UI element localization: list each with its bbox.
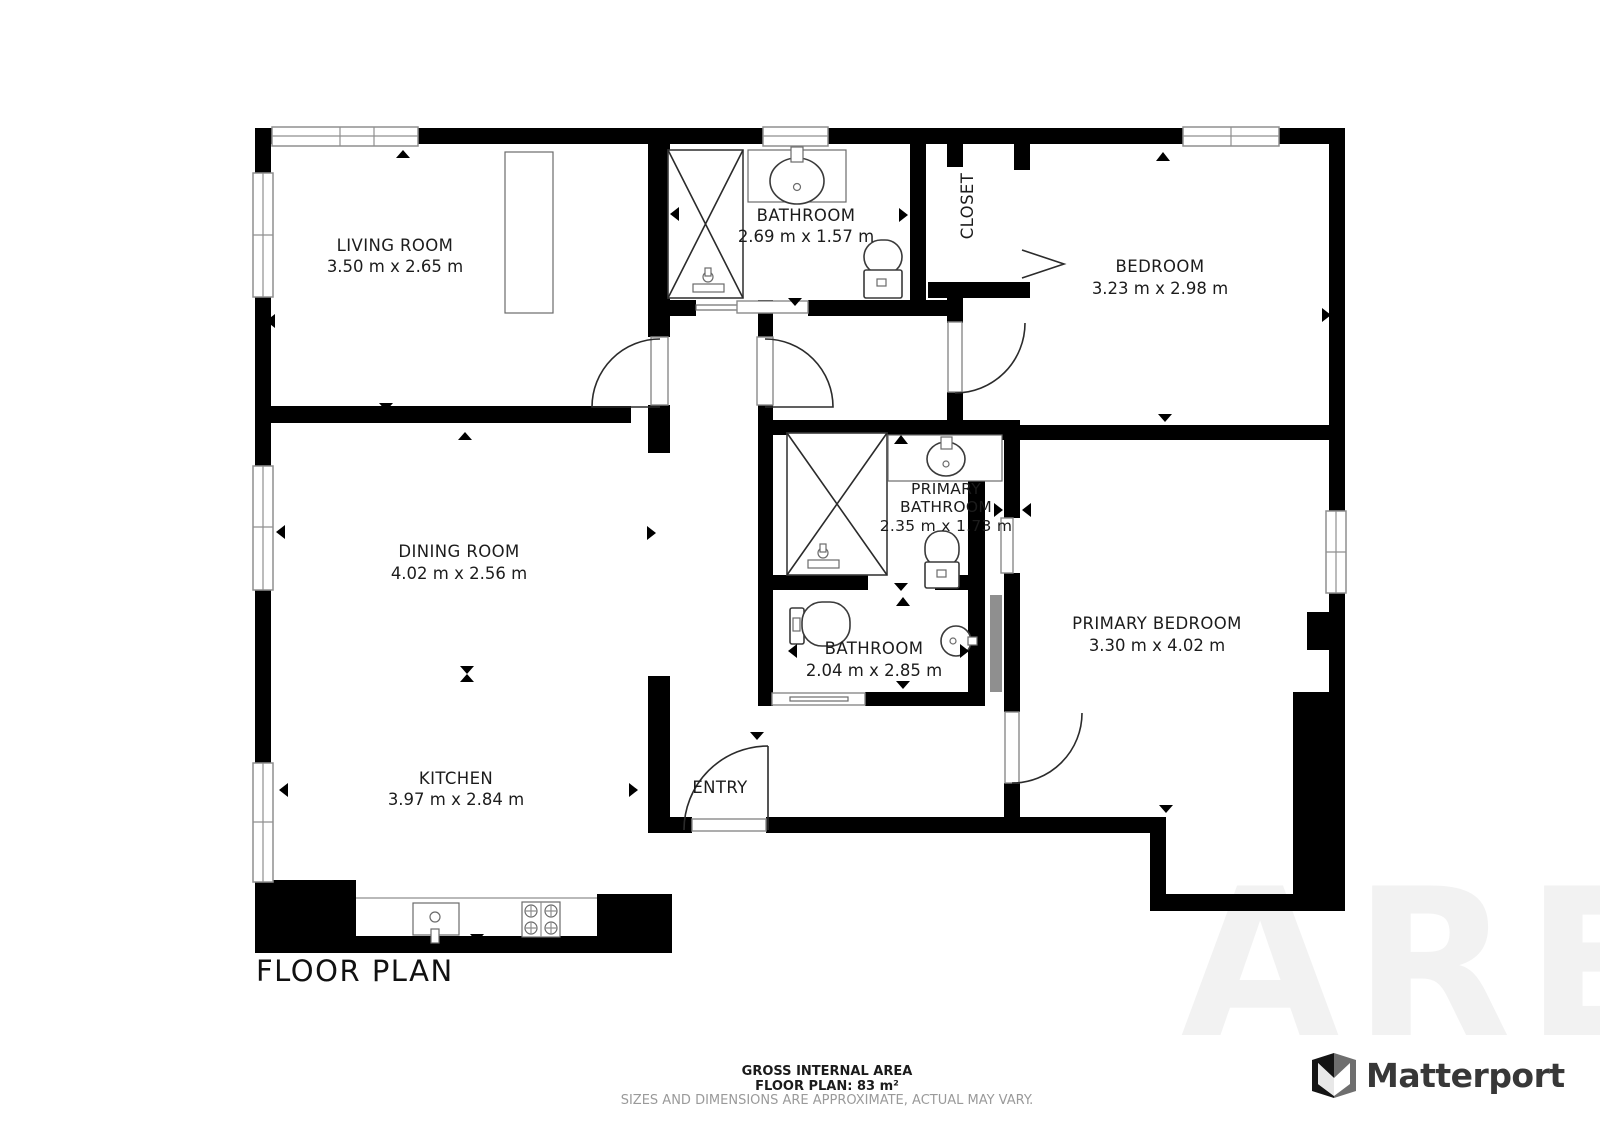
- door-arc: [765, 339, 833, 407]
- room-label-dining: DINING ROOM: [398, 542, 519, 561]
- measure-arrow: [896, 681, 910, 689]
- measure-arrow: [1159, 805, 1173, 813]
- room-dims-primary-bedroom: 3.30 m x 4.02 m: [1089, 636, 1225, 655]
- wall: [758, 575, 868, 590]
- measure-arrow: [1022, 503, 1031, 517]
- measure-arrow: [1158, 414, 1172, 422]
- room-dims-bathroom-lower: 2.04 m x 2.85 m: [806, 661, 942, 680]
- service-shaft: [990, 595, 1002, 692]
- wall: [648, 300, 696, 316]
- room-label-living: LIVING ROOM: [337, 236, 454, 255]
- measure-arrow: [460, 666, 474, 674]
- wall: [339, 936, 602, 953]
- closet-door: [1022, 250, 1064, 278]
- door-arc: [955, 323, 1025, 393]
- room-label-primary-bathroom-1: PRIMARY: [911, 480, 981, 498]
- wall: [947, 128, 963, 167]
- measure-arrow: [994, 503, 1003, 517]
- room-label-bedroom: BEDROOM: [1116, 257, 1205, 276]
- room-dims-bedroom: 3.23 m x 2.98 m: [1092, 279, 1228, 298]
- entry-door-threshold: [692, 819, 766, 831]
- wall: [1004, 573, 1020, 712]
- wall: [758, 692, 772, 706]
- measure-arrow: [788, 644, 797, 658]
- measure-arrow: [894, 583, 908, 591]
- room-label-kitchen: KITCHEN: [419, 769, 493, 788]
- door-leaf: [1005, 712, 1019, 783]
- door-leaf: [948, 322, 962, 392]
- wall: [1004, 783, 1020, 830]
- door-arc: [1012, 713, 1082, 783]
- wall: [808, 300, 948, 316]
- room-label-bathroom-top: BATHROOM: [757, 206, 856, 225]
- faucet-icon: [791, 147, 803, 162]
- footer-floor-plan-area: FLOOR PLAN: 83 m²: [755, 1079, 899, 1094]
- floor-plan-page: ARE: [0, 0, 1600, 1132]
- brand-name: Matterport: [1366, 1056, 1565, 1095]
- measure-arrow: [899, 208, 908, 222]
- door-arc: [592, 339, 660, 407]
- room-label-bathroom-lower: BATHROOM: [825, 639, 924, 658]
- measure-arrow: [279, 783, 288, 797]
- brand-logo: Matterport: [1312, 1053, 1565, 1098]
- floor-plan-canvas: ARE: [0, 0, 1600, 1132]
- measure-arrow: [647, 526, 656, 540]
- furniture: [505, 152, 553, 313]
- door-leaf: [757, 337, 773, 405]
- wall-pillar: [1307, 612, 1345, 650]
- sliding-door-track: [696, 305, 738, 310]
- measure-arrow: [276, 525, 285, 539]
- shower-drain-icon: [808, 560, 839, 568]
- wall: [865, 692, 968, 706]
- wall: [766, 817, 1166, 833]
- wardrobe: [505, 152, 553, 313]
- door-leaf: [651, 337, 668, 405]
- measure-arrow: [458, 432, 472, 440]
- wall: [928, 282, 1030, 298]
- sliding-door-track: [790, 697, 848, 701]
- room-label-entry: ENTRY: [692, 778, 748, 797]
- measure-arrow: [750, 732, 764, 740]
- wall: [648, 405, 670, 453]
- room-dims-living: 3.50 m x 2.65 m: [327, 257, 463, 276]
- wall: [597, 894, 672, 953]
- wall-pillar: [1293, 692, 1345, 911]
- room-label-primary-bathroom-2: BATHROOM: [900, 498, 992, 516]
- wall: [758, 420, 773, 706]
- footer-disclaimer: SIZES AND DIMENSIONS ARE APPROXIMATE, AC…: [621, 1093, 1034, 1108]
- sink-icon: [770, 158, 824, 204]
- measure-arrow: [629, 783, 638, 797]
- footer: GROSS INTERNAL AREA FLOOR PLAN: 83 m² SI…: [621, 1064, 1034, 1108]
- measure-arrow: [460, 674, 474, 682]
- room-label-primary-bedroom: PRIMARY BEDROOM: [1072, 614, 1242, 633]
- footer-gross-internal-area: GROSS INTERNAL AREA: [742, 1064, 913, 1079]
- measure-arrow: [396, 150, 410, 158]
- wall: [1014, 144, 1030, 170]
- measure-arrow: [1156, 152, 1170, 161]
- room-dims-kitchen: 3.97 m x 2.84 m: [388, 790, 524, 809]
- room-label-closet: CLOSET: [958, 172, 977, 239]
- page-title: FLOOR PLAN: [256, 954, 454, 988]
- wall: [255, 406, 631, 423]
- room-dims-dining: 4.02 m x 2.56 m: [391, 564, 527, 583]
- room-dims-bathroom-top: 2.69 m x 1.57 m: [738, 227, 874, 246]
- shower-drain-icon: [693, 284, 724, 292]
- faucet-icon: [941, 437, 952, 449]
- room-dims-primary-bathroom: 2.35 m x 1.73 m: [880, 517, 1013, 535]
- wall: [648, 676, 670, 833]
- faucet-icon: [968, 637, 977, 645]
- wall: [1004, 435, 1020, 518]
- measure-arrow: [896, 597, 910, 606]
- wall: [910, 144, 926, 300]
- background-watermark: ARE: [1181, 846, 1600, 1084]
- room-labels: LIVING ROOM 3.50 m x 2.65 m BATHROOM 2.6…: [327, 172, 1242, 809]
